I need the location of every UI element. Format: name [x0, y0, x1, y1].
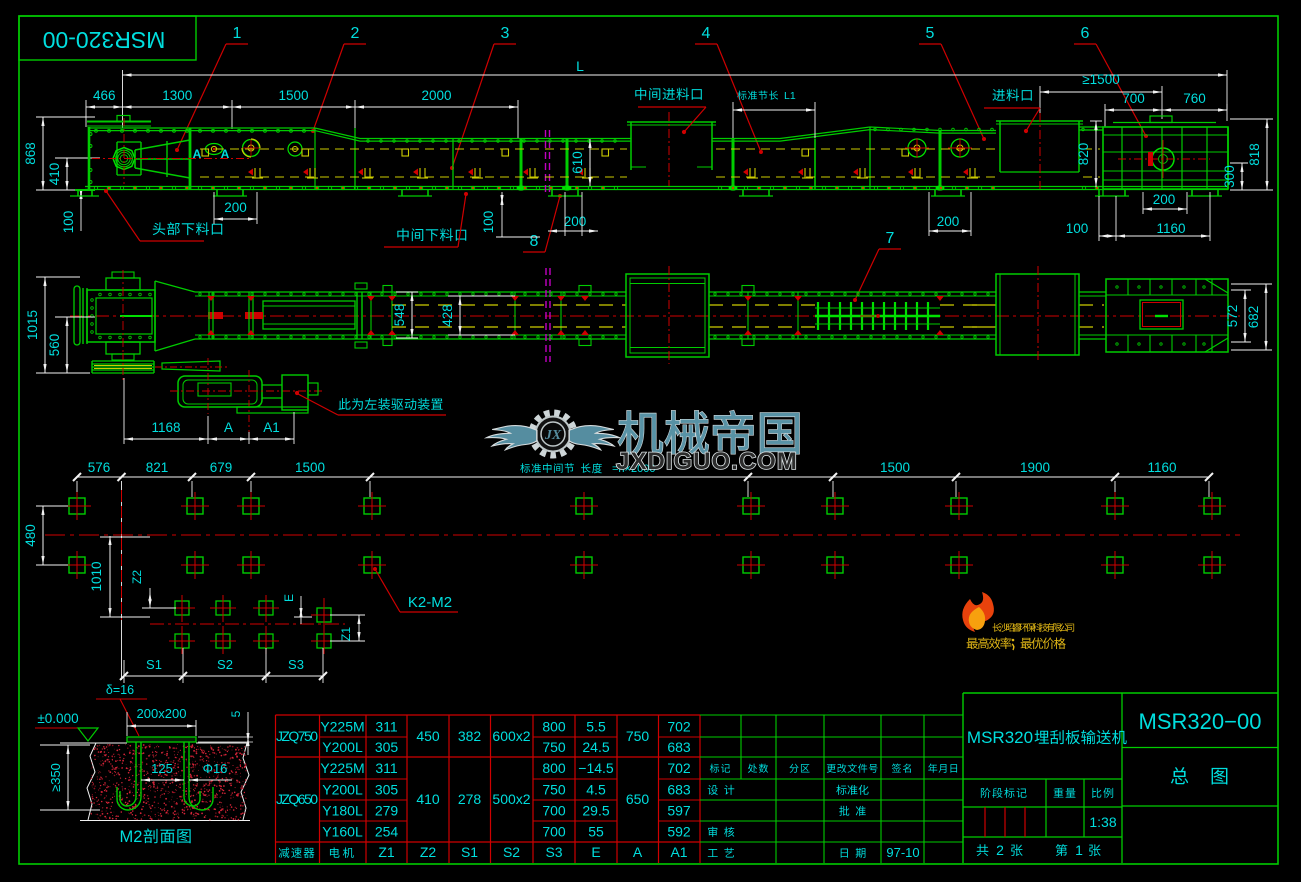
- svg-text:1300: 1300: [162, 88, 192, 103]
- svg-text:JZQ750: JZQ750: [276, 728, 318, 744]
- svg-text:8: 8: [530, 233, 539, 250]
- svg-text:δ=16: δ=16: [106, 683, 134, 697]
- svg-text:410: 410: [416, 791, 440, 807]
- svg-text:E: E: [282, 594, 296, 602]
- svg-text:M2: M2: [120, 828, 143, 846]
- svg-text:311: 311: [375, 719, 398, 735]
- svg-text:S3: S3: [288, 657, 304, 672]
- svg-text:97-10: 97-10: [886, 845, 919, 860]
- svg-text:1: 1: [233, 25, 242, 42]
- svg-text:1500: 1500: [295, 460, 325, 475]
- svg-text:592: 592: [667, 824, 691, 840]
- svg-text:≥1500: ≥1500: [1082, 72, 1119, 87]
- svg-text:A1: A1: [670, 844, 687, 860]
- svg-text:200: 200: [564, 214, 587, 229]
- svg-text:597: 597: [667, 803, 691, 819]
- svg-text:279: 279: [375, 803, 399, 819]
- svg-text:Φ16: Φ16: [203, 761, 228, 776]
- svg-text:7: 7: [886, 230, 895, 247]
- svg-text:A: A: [633, 844, 643, 860]
- svg-text:700: 700: [542, 824, 566, 840]
- svg-text:1900: 1900: [1020, 460, 1050, 475]
- svg-text:200: 200: [224, 200, 247, 215]
- svg-text:MSR320−00: MSR320−00: [1139, 709, 1262, 734]
- svg-text:450: 450: [416, 728, 440, 744]
- svg-text:−14.5: −14.5: [578, 760, 614, 776]
- svg-text:305: 305: [375, 739, 399, 755]
- svg-text:750: 750: [626, 728, 650, 744]
- svg-text:Z2: Z2: [420, 844, 437, 860]
- svg-text:820: 820: [1076, 143, 1091, 166]
- svg-text:702: 702: [667, 760, 691, 776]
- svg-text:1500: 1500: [880, 460, 910, 475]
- svg-text:1168: 1168: [151, 420, 180, 435]
- svg-text:≥350: ≥350: [48, 763, 63, 792]
- svg-text:1160: 1160: [1147, 460, 1176, 475]
- svg-text:Y160L: Y160L: [322, 824, 363, 840]
- svg-text:1160: 1160: [1156, 221, 1185, 236]
- svg-text:610: 610: [570, 151, 585, 174]
- svg-text:254: 254: [375, 824, 399, 840]
- svg-text:A1: A1: [263, 420, 280, 435]
- svg-text:683: 683: [667, 739, 691, 755]
- svg-text:L1: L1: [784, 90, 796, 102]
- svg-text:1015: 1015: [25, 310, 40, 340]
- svg-text:821: 821: [146, 460, 169, 475]
- svg-text:800: 800: [542, 760, 566, 776]
- svg-text:L: L: [576, 58, 584, 74]
- svg-text:S2: S2: [503, 844, 520, 860]
- svg-text:Y200L: Y200L: [322, 782, 363, 798]
- svg-text:1:38: 1:38: [1089, 814, 1116, 830]
- svg-text:1500: 1500: [278, 88, 308, 103]
- svg-text:Y225M: Y225M: [320, 760, 364, 776]
- svg-text:700: 700: [542, 803, 566, 819]
- svg-text:1010: 1010: [89, 561, 104, 591]
- svg-text:480: 480: [23, 524, 38, 547]
- svg-text:560: 560: [47, 334, 62, 357]
- svg-text:5: 5: [229, 710, 243, 717]
- svg-text:JXDIGUO.COM: JXDIGUO.COM: [616, 448, 798, 475]
- svg-text:2000: 2000: [421, 88, 451, 103]
- svg-text:868: 868: [23, 142, 38, 165]
- svg-text:JZQ650: JZQ650: [276, 791, 318, 807]
- svg-text:278: 278: [458, 791, 482, 807]
- svg-text:Z2: Z2: [130, 570, 144, 584]
- svg-text:55: 55: [588, 824, 604, 840]
- svg-text:MSR320: MSR320: [967, 728, 1033, 747]
- svg-text:Y200L: Y200L: [322, 739, 363, 755]
- svg-text:MSR320-00: MSR320-00: [43, 27, 166, 53]
- svg-text:4.5: 4.5: [586, 782, 606, 798]
- svg-text:200: 200: [1153, 192, 1176, 207]
- svg-text:S2: S2: [217, 657, 233, 672]
- svg-text:S1: S1: [461, 844, 478, 860]
- svg-text:600x2: 600x2: [492, 728, 530, 744]
- svg-text:410: 410: [47, 163, 62, 186]
- svg-text:125: 125: [151, 761, 173, 776]
- svg-text:6: 6: [1081, 25, 1090, 42]
- svg-text:800: 800: [542, 719, 566, 735]
- svg-text:S1: S1: [146, 657, 162, 672]
- svg-text:Y180L: Y180L: [322, 803, 363, 819]
- svg-text:700: 700: [1122, 91, 1145, 106]
- svg-text:382: 382: [458, 728, 482, 744]
- svg-text:3: 3: [501, 25, 510, 42]
- svg-text:760: 760: [1183, 91, 1206, 106]
- svg-text:311: 311: [375, 760, 398, 776]
- svg-text:300: 300: [1222, 165, 1237, 188]
- svg-text:24.5: 24.5: [582, 739, 609, 755]
- svg-text:576: 576: [88, 460, 111, 475]
- svg-text:500x2: 500x2: [492, 791, 530, 807]
- svg-text:29.5: 29.5: [582, 803, 609, 819]
- svg-text:1: 1: [1075, 842, 1083, 858]
- svg-text:S3: S3: [545, 844, 562, 860]
- svg-text:683: 683: [667, 782, 691, 798]
- svg-text:5.5: 5.5: [586, 719, 606, 735]
- svg-text:Y225M: Y225M: [320, 719, 364, 735]
- svg-text:818: 818: [1247, 143, 1262, 166]
- svg-text:428: 428: [440, 304, 455, 327]
- svg-text:E: E: [591, 844, 600, 860]
- svg-text:750: 750: [542, 739, 566, 755]
- svg-text:5: 5: [926, 25, 935, 42]
- svg-text:305: 305: [375, 782, 399, 798]
- svg-text:682: 682: [1246, 306, 1261, 329]
- svg-text:702: 702: [667, 719, 691, 735]
- svg-text:466: 466: [93, 88, 116, 103]
- svg-text:572: 572: [1225, 305, 1240, 328]
- svg-text:548: 548: [392, 304, 407, 327]
- svg-text:K2-M2: K2-M2: [408, 594, 452, 611]
- svg-text:JX: JX: [544, 428, 562, 443]
- svg-text:100: 100: [481, 211, 496, 234]
- svg-text:2: 2: [351, 25, 360, 42]
- svg-text:度: 度: [592, 462, 603, 475]
- svg-text:679: 679: [210, 460, 233, 475]
- svg-text:±0.000: ±0.000: [37, 711, 78, 726]
- svg-text:Z1: Z1: [339, 627, 353, 641]
- svg-text:750: 750: [542, 782, 566, 798]
- svg-text:4: 4: [702, 25, 711, 42]
- svg-text:A: A: [224, 420, 233, 435]
- svg-text:650: 650: [626, 791, 650, 807]
- svg-text:2: 2: [996, 842, 1004, 858]
- svg-text:100: 100: [61, 211, 76, 234]
- svg-text:Z1: Z1: [378, 844, 395, 860]
- svg-text:200x200: 200x200: [137, 706, 187, 721]
- svg-text:200: 200: [937, 214, 960, 229]
- svg-text:100: 100: [1066, 221, 1089, 236]
